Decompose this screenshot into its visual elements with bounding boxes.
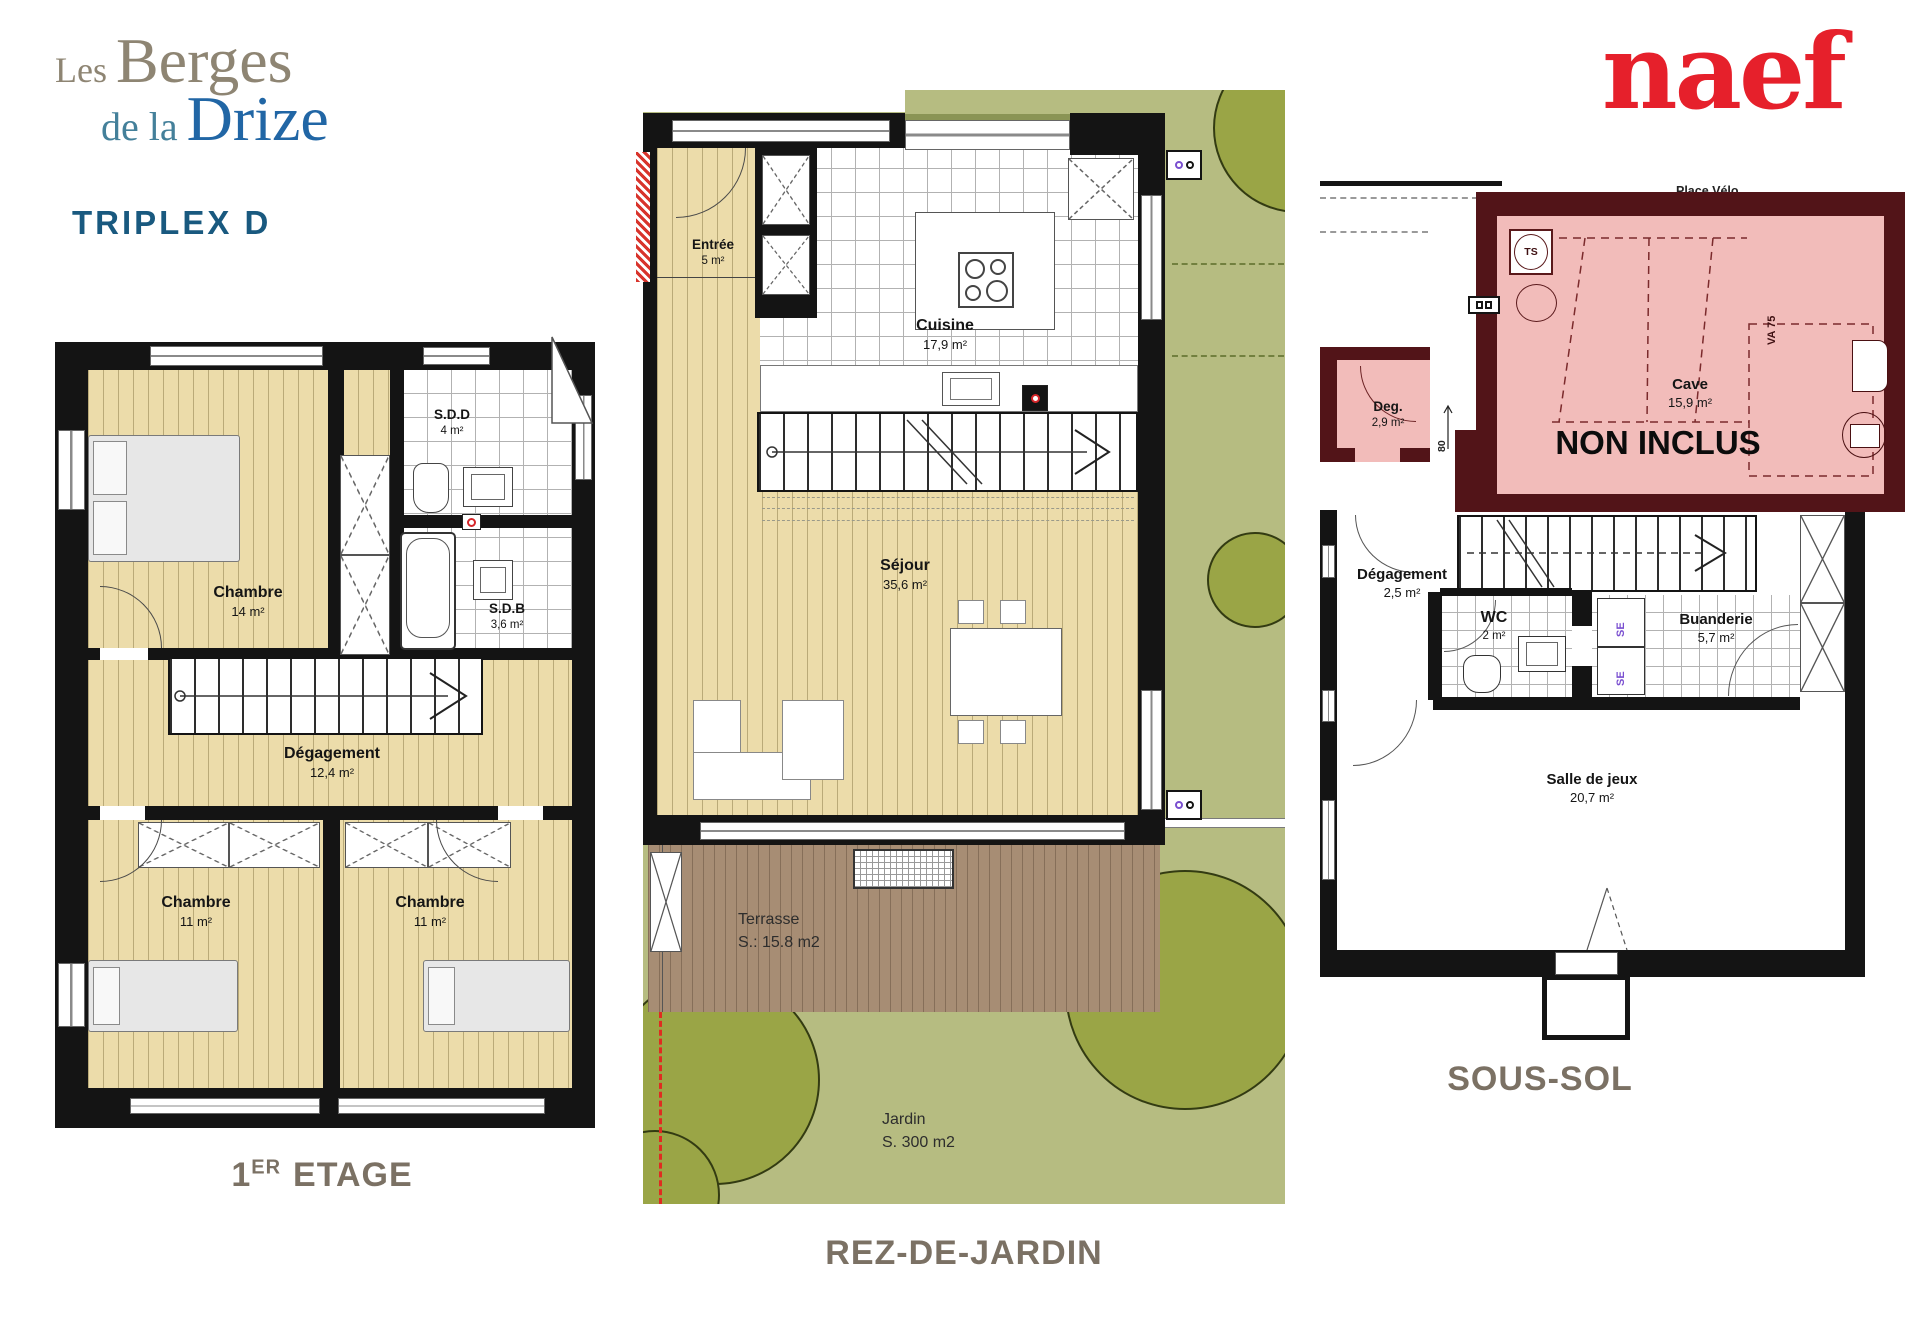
floorplan-page: Les Berges de la Drize TRIPLEX D naef xyxy=(0,0,1920,1329)
wardrobe-cell xyxy=(345,822,428,868)
exterior-door-swing xyxy=(1575,885,1639,952)
window-left-upper xyxy=(58,430,85,510)
cooktop-icon xyxy=(958,252,1014,308)
window-bottom-right xyxy=(338,1098,545,1114)
logo-les: Les xyxy=(55,49,107,91)
dim-80: 80 xyxy=(1436,440,1448,452)
window-entree xyxy=(672,120,890,142)
boiler-circle-icon xyxy=(1516,284,1557,322)
unit-title: TRIPLEX D xyxy=(72,204,271,242)
room-label-chambre3: Chambre11 m² xyxy=(395,893,464,931)
socket-dot-icon xyxy=(1186,161,1194,169)
cistern-inner xyxy=(1526,642,1558,666)
room-label-cave: Cave15,9 m² xyxy=(1668,375,1712,411)
wall-vent-symbol xyxy=(1468,296,1500,314)
label-jardin: JardinS. 300 m2 xyxy=(882,1108,955,1154)
room-label-buanderie: Buanderie5,7 m² xyxy=(1679,610,1752,646)
lightwell-opening xyxy=(1555,952,1618,975)
room-label-salle-de-jeux: Salle de jeux20,7 m² xyxy=(1547,770,1638,806)
equipment-box xyxy=(1850,424,1880,448)
window-bottom-left xyxy=(130,1098,320,1114)
caption-1er-etage: 1ERETAGE xyxy=(231,1156,412,1195)
stairs-direction-arrow-icon xyxy=(168,657,483,735)
boundary-red-dashed-line xyxy=(659,1012,662,1204)
wall-stub xyxy=(1572,666,1592,700)
wall-wc-left xyxy=(1428,592,1442,700)
room-label-cuisine: Cuisine17,9 m² xyxy=(916,316,974,354)
pillow xyxy=(93,441,127,495)
logo-de-la: de la xyxy=(101,103,178,150)
window-right-lower xyxy=(1141,690,1162,810)
kitchen-sink-bowl xyxy=(950,378,992,400)
terrace-grate xyxy=(853,849,954,889)
socket-dot-icon xyxy=(1175,801,1183,809)
caption-sous-sol: SOUS-SOL xyxy=(1447,1060,1633,1099)
wardrobe-cell xyxy=(762,235,810,295)
pillow xyxy=(428,967,455,1025)
wall-stub xyxy=(1572,592,1592,626)
chair xyxy=(1000,600,1026,624)
socket-dot-icon xyxy=(1175,161,1183,169)
door-gap-chambre3 xyxy=(498,806,543,820)
coffee-table xyxy=(782,700,844,780)
door-swing-triangle xyxy=(550,335,596,427)
label-va75: VA 75 xyxy=(1766,316,1778,345)
window-left-lower xyxy=(58,963,85,1027)
room-label-entree: Entrée5 m² xyxy=(692,236,734,268)
label-non-inclus: NON INCLUS xyxy=(1555,424,1760,462)
bathtub-inner xyxy=(406,538,450,638)
washbasin-bowl xyxy=(480,567,506,593)
dining-table xyxy=(950,628,1062,716)
room-label-sejour: Séjour35,6 m² xyxy=(880,556,930,594)
wall-service-bottom xyxy=(1433,697,1800,710)
ts-box: TS xyxy=(1509,229,1553,275)
wardrobe-cell xyxy=(340,455,390,555)
chair xyxy=(958,600,984,624)
stairs-direction-arrow-icon xyxy=(757,412,1138,492)
radiator-symbol xyxy=(462,514,481,530)
window-left xyxy=(1322,800,1335,880)
chair xyxy=(1000,720,1026,744)
room-label-chambre2: Chambre11 m² xyxy=(161,893,230,931)
room-label-deg: Deg.2,9 m² xyxy=(1372,398,1405,430)
room-label-chambre1: Chambre14 m² xyxy=(213,583,282,621)
window-right-upper xyxy=(1141,195,1162,320)
caption-rez-de-jardin: REZ-DE-JARDIN xyxy=(825,1234,1102,1273)
wall-divider-bottom xyxy=(323,820,340,1088)
wall-right xyxy=(1845,494,1865,977)
room-label-sdd: S.D.D4 m² xyxy=(434,406,470,438)
entree-boundary-line xyxy=(657,277,760,278)
wardrobe-cell xyxy=(762,155,810,225)
wardrobe-cell xyxy=(1800,603,1845,692)
door-arc xyxy=(1353,700,1417,766)
toilet xyxy=(413,463,449,513)
label-se-2: SE xyxy=(1615,671,1627,686)
ventilation-duct xyxy=(1852,340,1888,392)
washbasin-bowl xyxy=(471,474,505,500)
window-top-left xyxy=(150,346,323,366)
room-label-wc: WC2 m² xyxy=(1481,608,1508,644)
window-top-right xyxy=(423,347,490,365)
radiator-dot-icon xyxy=(467,518,476,527)
boundary-line xyxy=(1320,181,1502,186)
door-gap-chambre2 xyxy=(100,806,145,820)
tree xyxy=(1213,90,1285,213)
landing-dashed-line xyxy=(762,497,1134,498)
plot-dashed-line xyxy=(1172,355,1284,357)
stairs-direction-arrow-icon xyxy=(1457,515,1757,592)
terrace-pillar xyxy=(650,852,682,952)
door-gap-chambre1 xyxy=(100,648,148,660)
wall-sdd-sdb xyxy=(404,515,572,528)
landing-dashed-line xyxy=(762,520,1134,521)
wall-left xyxy=(1320,510,1337,977)
tree xyxy=(1207,532,1285,628)
pillow xyxy=(93,501,127,555)
wall-red-hatch xyxy=(636,152,650,282)
socket-symbol xyxy=(1166,150,1202,180)
naef-brand-logo: naef xyxy=(1602,10,1844,133)
socket-symbol xyxy=(1166,790,1202,820)
room-label-sdb: S.D.B3,6 m² xyxy=(489,600,525,632)
sliding-glass-door xyxy=(700,822,1125,840)
wall-stub xyxy=(1455,430,1476,512)
room-label-degagement: Dégagement12,4 m² xyxy=(284,744,380,782)
pillow xyxy=(93,967,120,1025)
label-se-1: SE xyxy=(1615,622,1627,637)
ts-circle-icon: TS xyxy=(1514,234,1548,270)
window-left xyxy=(1322,545,1335,578)
wall-top xyxy=(55,342,595,370)
wardrobe-cell xyxy=(340,555,390,655)
boundary-dashed-line xyxy=(1320,197,1478,199)
plot-dashed-line xyxy=(1172,263,1284,265)
deg-door-gap xyxy=(1355,448,1400,462)
wardrobe-cell xyxy=(1800,515,1845,603)
landing-dashed-line xyxy=(762,508,1134,509)
project-logo: Les Berges de la Drize xyxy=(55,24,329,156)
window-well xyxy=(1542,975,1630,1040)
window-left xyxy=(1322,690,1335,722)
plot-strip xyxy=(643,90,905,112)
logo-drize: Drize xyxy=(187,82,329,156)
boiler-dot-icon xyxy=(1031,394,1040,403)
chair xyxy=(958,720,984,744)
boundary-dashed-line xyxy=(1320,231,1428,233)
kitchen-tall-unit xyxy=(1068,158,1134,220)
wardrobe-cell xyxy=(229,822,320,868)
boiler-symbol xyxy=(1022,385,1048,411)
label-terrasse: TerrasseS.: 15.8 m2 xyxy=(738,908,820,954)
window-cuisine-top xyxy=(905,120,1070,150)
toilet xyxy=(1463,655,1501,693)
socket-dot-icon xyxy=(1186,801,1194,809)
room-label-degagement-ss: Dégagement2,5 m² xyxy=(1357,565,1447,601)
